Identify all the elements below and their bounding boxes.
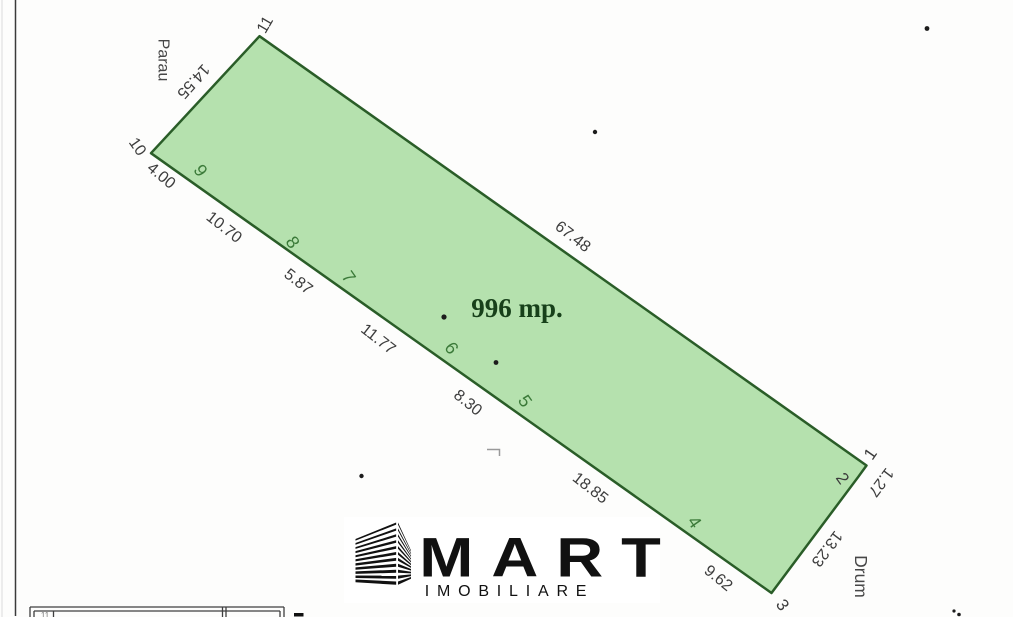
svg-text:996 mp.: 996 mp. [471,293,563,323]
svg-text:Drum: Drum [851,555,871,598]
svg-text:MART: MART [419,526,678,589]
svg-text:Parau: Parau [155,39,172,82]
svg-text:11: 11 [41,611,50,617]
svg-text:IMOBILIARE: IMOBILIARE [425,583,595,600]
